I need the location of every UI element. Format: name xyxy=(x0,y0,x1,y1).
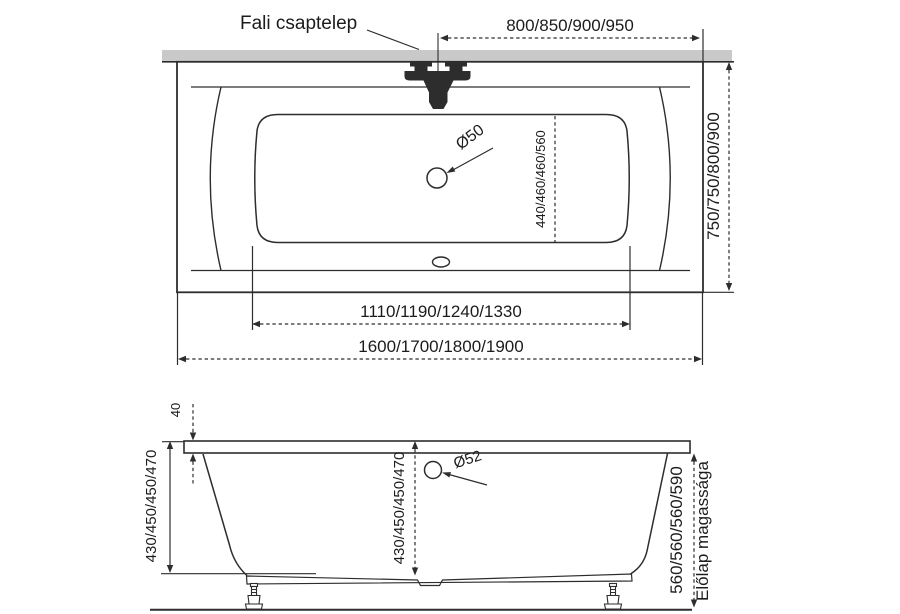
depth-inner-dim: 430/450/450/470 xyxy=(391,452,408,565)
wall-band xyxy=(162,50,732,62)
drawing-canvas: Ø50 440/460/460/560 Fali csaptelep 800/8… xyxy=(0,0,900,614)
top-view-plan: Ø50 440/460/460/560 Fali csaptelep 800/8… xyxy=(162,13,734,365)
arrowhead xyxy=(190,454,196,462)
arrowhead xyxy=(691,454,697,462)
side-view-section: Ø52 40 430/450/450/470 430/450/450/470 5… xyxy=(143,403,712,610)
overflow-slot xyxy=(433,257,450,267)
faucet-plate xyxy=(405,71,471,81)
faucet-label: Fali csaptelep xyxy=(240,13,357,34)
arrowhead xyxy=(252,321,260,327)
foot-block xyxy=(248,596,260,605)
drain-position-dim: 440/460/460/560 xyxy=(533,130,548,228)
arrowhead xyxy=(726,283,732,291)
basin-length-dim: 1110/1190/1240/1330 xyxy=(360,302,522,321)
arrowhead xyxy=(726,62,732,70)
foot-stem xyxy=(252,587,257,596)
arrowhead xyxy=(692,35,700,41)
foot-stem xyxy=(611,587,616,596)
foot-base xyxy=(605,604,622,609)
arrowhead xyxy=(442,472,451,477)
depth-outer-dim: 430/450/450/470 xyxy=(143,450,160,563)
panel-height-label: Előlap magassága xyxy=(693,461,712,601)
faucet-offset-dim: 800/850/900/950 xyxy=(506,16,634,35)
panel-height-dim: 560/560/560/590 xyxy=(667,466,686,594)
arrowhead xyxy=(622,321,630,327)
overflow-leader-line xyxy=(449,475,487,486)
shell-wall-left xyxy=(203,454,247,576)
foot-base xyxy=(246,604,263,609)
foot-block xyxy=(607,596,619,605)
rim-thickness-dim: 40 xyxy=(168,403,183,417)
arrowhead xyxy=(440,35,448,41)
arrowhead xyxy=(167,565,173,573)
arrowhead xyxy=(412,568,418,576)
arrowhead xyxy=(694,356,702,362)
overall-length-dim: 1600/1700/1800/1900 xyxy=(358,337,523,356)
width-dim: 750/750/800/900 xyxy=(704,112,723,240)
bathtub-technical-drawing: Ø50 440/460/460/560 Fali csaptelep 800/8… xyxy=(0,0,900,614)
shell-wall-right xyxy=(631,454,668,575)
drain-hole xyxy=(427,168,447,188)
overflow-hole xyxy=(425,462,442,479)
arrowhead xyxy=(190,433,196,441)
rim-profile xyxy=(184,441,690,453)
foot-right xyxy=(605,584,622,610)
arrowhead xyxy=(178,356,186,362)
support-frame xyxy=(247,574,633,586)
foot-left xyxy=(246,584,263,610)
faucet-label-leader xyxy=(367,30,419,50)
